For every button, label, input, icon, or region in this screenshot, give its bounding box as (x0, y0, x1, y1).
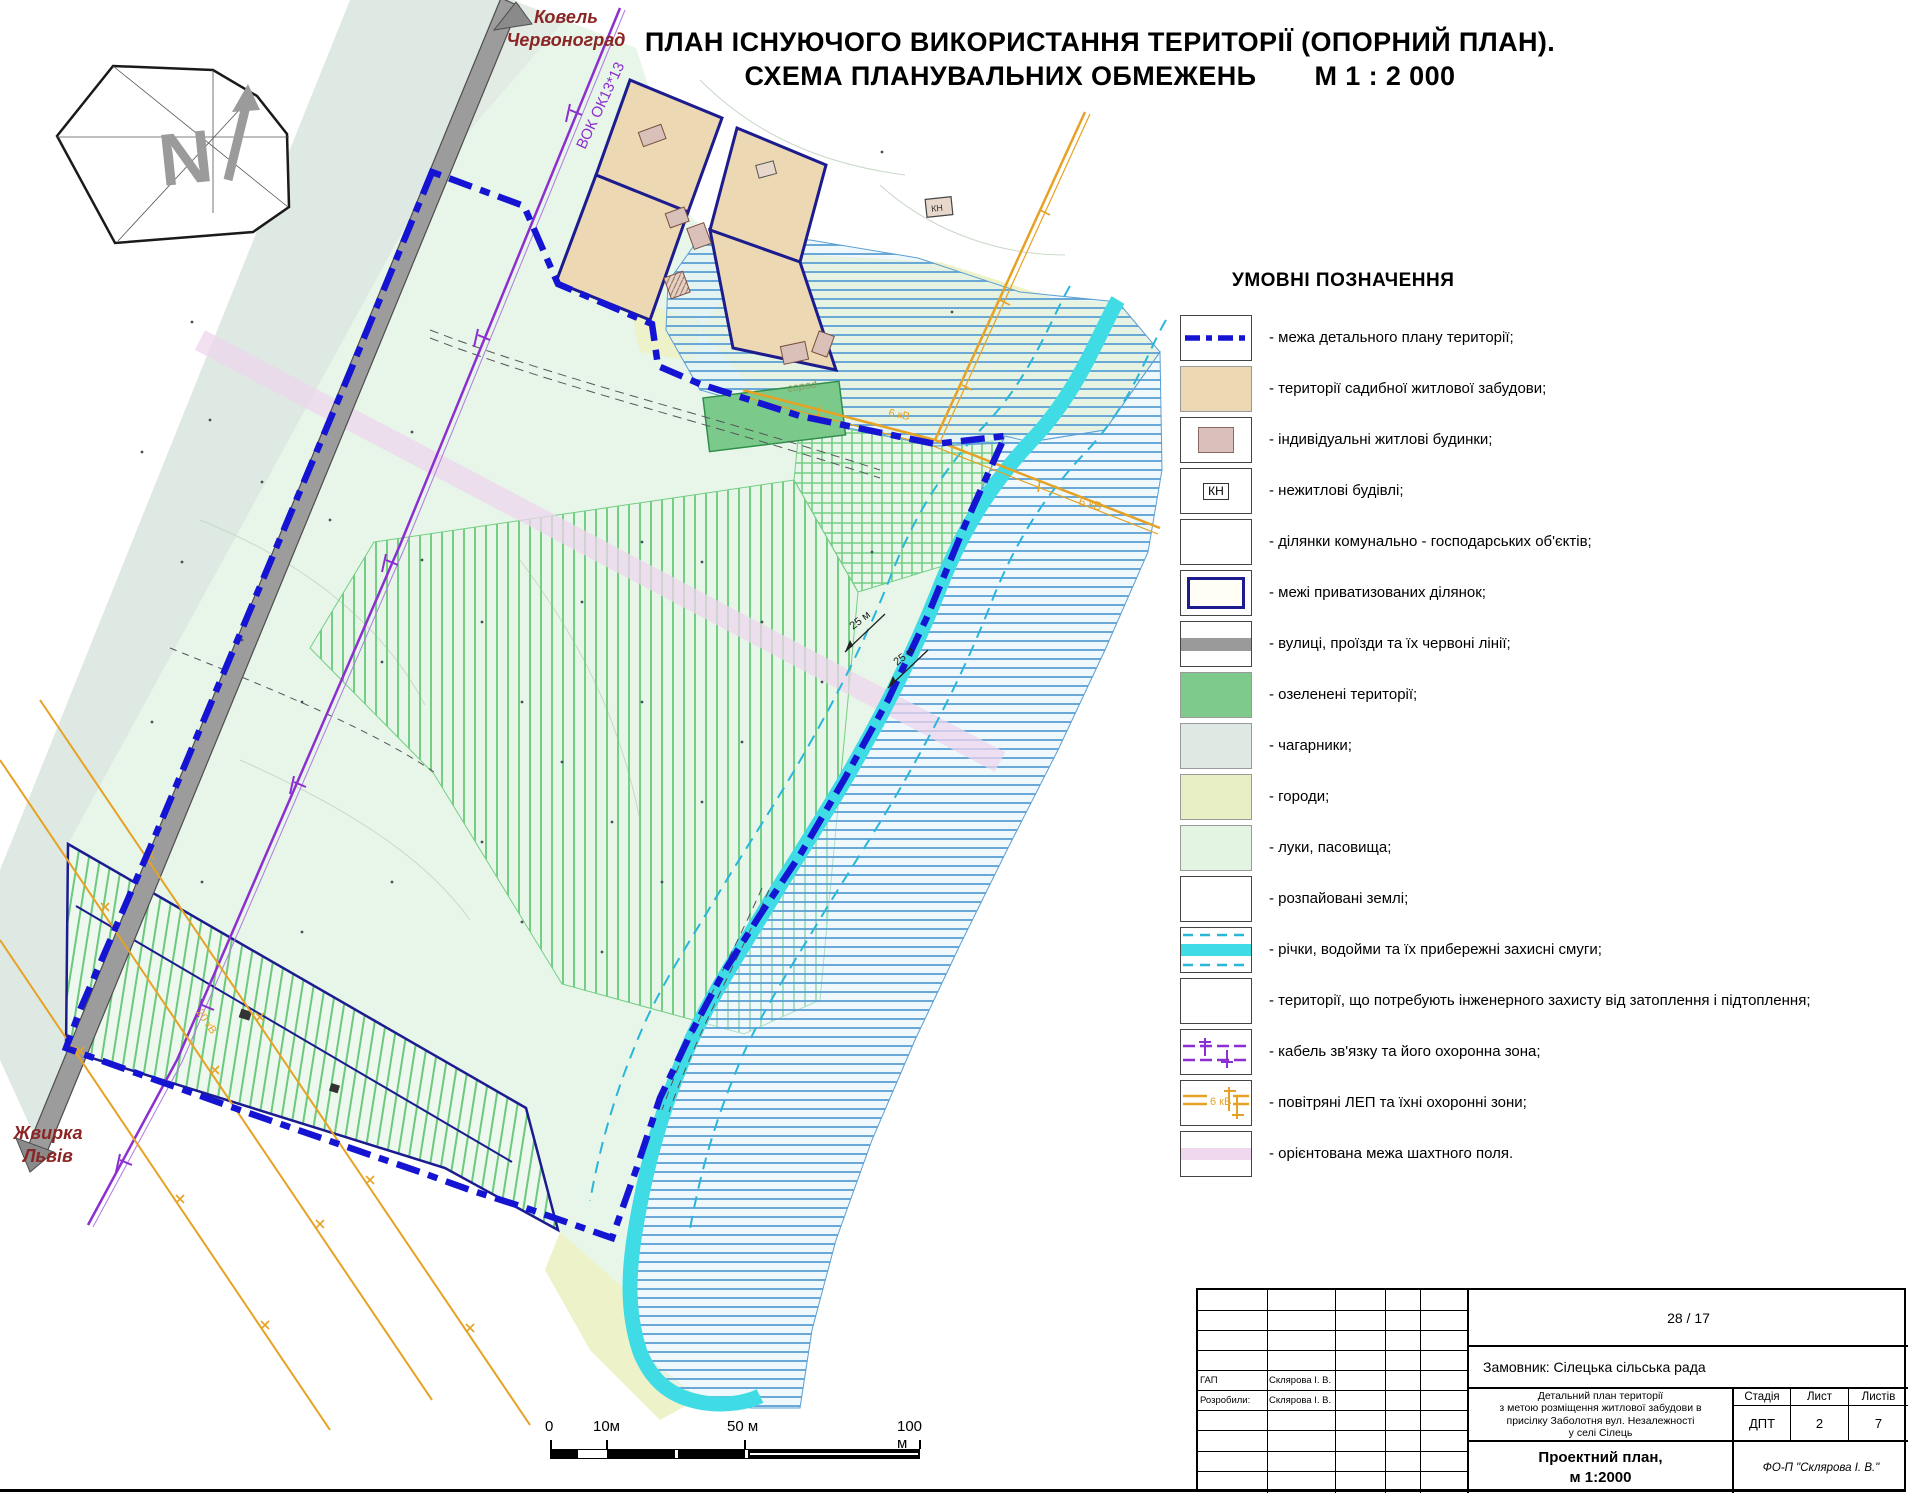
title-block: ГАП Склярова І. В. Розробили: Склярова І… (1196, 1288, 1906, 1491)
legend-item-mine: - орієнтована межа шахтного поля. (1180, 1131, 1513, 1177)
cable-swatch (1180, 1029, 1252, 1075)
road-label-zhvyrka: Жвирка (0, 1122, 96, 1145)
scale-50: 50 м (727, 1418, 758, 1435)
road-label-lviv: Львів (0, 1145, 96, 1168)
north-arrow: N (57, 66, 289, 243)
sheet-value: 2 (1791, 1406, 1848, 1440)
legend-item-residential: - території садибної житлової забудови; (1180, 366, 1546, 412)
stage-label: Стадія (1734, 1389, 1790, 1405)
scale-10: 10м (593, 1418, 620, 1435)
legend-label: - вулиці, проїзди та їх червоні лінії; (1269, 635, 1511, 653)
lep-swatch-label: 6 кВ (1210, 1096, 1231, 1108)
project-line-1: Детальний план території (1538, 1390, 1663, 1402)
north-letter: N (155, 114, 217, 202)
mine-swatch (1180, 1131, 1252, 1177)
road-label-kovel: Ковель (496, 6, 636, 29)
houses-swatch (1180, 417, 1252, 463)
legend-item-communal: - ділянки комунально - господарських об'… (1180, 519, 1592, 565)
legend-item-allotments: - розпайовані землі; (1180, 876, 1408, 922)
client: Замовник: Сілецька сільська рада (1483, 1347, 1908, 1387)
flood-swatch (1180, 978, 1252, 1024)
document-name-1: Проектний план, (1538, 1448, 1662, 1468)
stage-value: ДПТ (1734, 1406, 1790, 1440)
sheet-frame (0, 1489, 1906, 1492)
legend-label: - чагарники; (1269, 737, 1352, 755)
legend-item-privatized: - межі приватизованих ділянок; (1180, 570, 1486, 616)
legend-item-rivers: - річки, водойми та їх прибережні захисн… (1180, 927, 1602, 973)
stamp-role-developed: Розробили: (1200, 1390, 1267, 1410)
legend-label: - озеленені території; (1269, 686, 1417, 704)
meadows-swatch (1180, 825, 1252, 871)
legend-item-meadows: - луки, пасовища; (1180, 825, 1391, 871)
shrubs-swatch (1180, 723, 1252, 769)
allotments-swatch (1180, 876, 1252, 922)
legend-label: - розпайовані землі; (1269, 890, 1408, 908)
legend-label: - кабель зв'язку та його охоронна зона; (1269, 1043, 1541, 1061)
page-title: ПЛАН ІСНУЮЧОГО ВИКОРИСТАННЯ ТЕРИТОРІЇ (О… (610, 26, 1590, 94)
legend-heading: УМОВНІ ПОЗНАЧЕННЯ (1232, 270, 1454, 292)
privatized-swatch (1180, 570, 1252, 616)
rivers-swatch (1180, 927, 1252, 973)
legend-label: - території садибної житлової забудови; (1269, 380, 1546, 398)
gardens-swatch (1180, 774, 1252, 820)
kn-box-label: КН (931, 203, 944, 214)
sheets-value: 7 (1849, 1406, 1908, 1440)
legend-label: - нежитлові будівлі; (1269, 482, 1404, 500)
plan-sheet: ВОК ОК13*13 6 кВ 6 кВ 20 кВ (0, 0, 1920, 1496)
road-label-south: Жвирка Львів (0, 1122, 96, 1167)
legend-item-boundary: - межа детального плану території; (1180, 315, 1514, 361)
boundary-swatch (1180, 315, 1252, 361)
document-name-2: м 1:2000 (1570, 1468, 1632, 1488)
legend-label: - орієнтована межа шахтного поля. (1269, 1145, 1513, 1163)
legend-label: - повітряні ЛЕП та їхні охоронні зони; (1269, 1094, 1527, 1112)
sheet-label: Лист (1791, 1389, 1848, 1405)
legend-item-streets: - вулиці, проїзди та їх червоні лінії; (1180, 621, 1511, 667)
page-title-line1: ПЛАН ІСНУЮЧОГО ВИКОРИСТАННЯ ТЕРИТОРІЇ (О… (610, 26, 1590, 60)
lep-swatch: 6 кВ (1180, 1080, 1252, 1126)
page-title-line2: СХЕМА ПЛАНУВАЛЬНИХ ОБМЕЖЕНЬ (745, 60, 1257, 94)
legend-label: - річки, водойми та їх прибережні захисн… (1269, 941, 1602, 959)
legend-item-flood: - території, що потребують інженерного з… (1180, 978, 1811, 1024)
legend-label: - городи; (1269, 788, 1329, 806)
legend-label: - межа детального плану території; (1269, 329, 1514, 347)
stamp-role-gap: ГАП (1200, 1370, 1265, 1390)
kn-swatch-label: КН (1203, 483, 1229, 500)
road-label-chervonograd: Червоноград (496, 29, 636, 52)
legend-item-houses: - індивідуальні житлові будинки; (1180, 417, 1492, 463)
green-swatch (1180, 672, 1252, 718)
legend-item-gardens: - городи; (1180, 774, 1329, 820)
project-line-3: присілку Заболотня вул. Незалежності (1507, 1415, 1695, 1427)
legend-item-lep: 6 кВ - повітряні ЛЕП та їхні охоронні зо… (1180, 1080, 1527, 1126)
legend-item-shrubs: - чагарники; (1180, 723, 1352, 769)
page-title-scale: М 1 : 2 000 (1314, 60, 1455, 94)
map-canvas: ВОК ОК13*13 6 кВ 6 кВ 20 кВ (0, 0, 1920, 1496)
legend-item-cable: - кабель зв'язку та його охоронна зона; (1180, 1029, 1541, 1075)
document-name: Проектний план, м 1:2000 (1469, 1442, 1732, 1493)
legend-label: - межі приватизованих ділянок; (1269, 584, 1486, 602)
stamp-name-1: Склярова І. В. (1269, 1370, 1333, 1390)
scale-100: 100 м (897, 1418, 935, 1452)
streets-swatch (1180, 621, 1252, 667)
scale-bar: 0 10м 50 м 100 м (545, 1418, 935, 1470)
legend-label: - луки, пасовища; (1269, 839, 1391, 857)
project-description: Детальний план території з метою розміще… (1469, 1389, 1732, 1440)
project-number: 28 / 17 (1469, 1290, 1908, 1345)
legend-item-green: - озеленені території; (1180, 672, 1417, 718)
communal-swatch (1180, 519, 1252, 565)
sheets-label: Листів (1849, 1389, 1908, 1405)
legend-item-nonresidential: КН - нежитлові будівлі; (1180, 468, 1404, 514)
project-line-4: у селі Сілець (1569, 1427, 1633, 1439)
legend-label: - ділянки комунально - господарських об'… (1269, 533, 1592, 551)
residential-swatch (1180, 366, 1252, 412)
nonresidential-swatch: КН (1180, 468, 1252, 514)
legend-label: - території, що потребують інженерного з… (1269, 992, 1811, 1010)
scale-0: 0 (545, 1418, 553, 1435)
company: ФО-П "Склярова І. В." (1734, 1442, 1908, 1493)
project-line-2: з метою розміщення житлової забудови в (1499, 1402, 1701, 1414)
road-label-north: Ковель Червоноград (496, 6, 636, 51)
legend-label: - індивідуальні житлові будинки; (1269, 431, 1492, 449)
stamp-name-2: Склярова І. В. (1269, 1390, 1333, 1410)
